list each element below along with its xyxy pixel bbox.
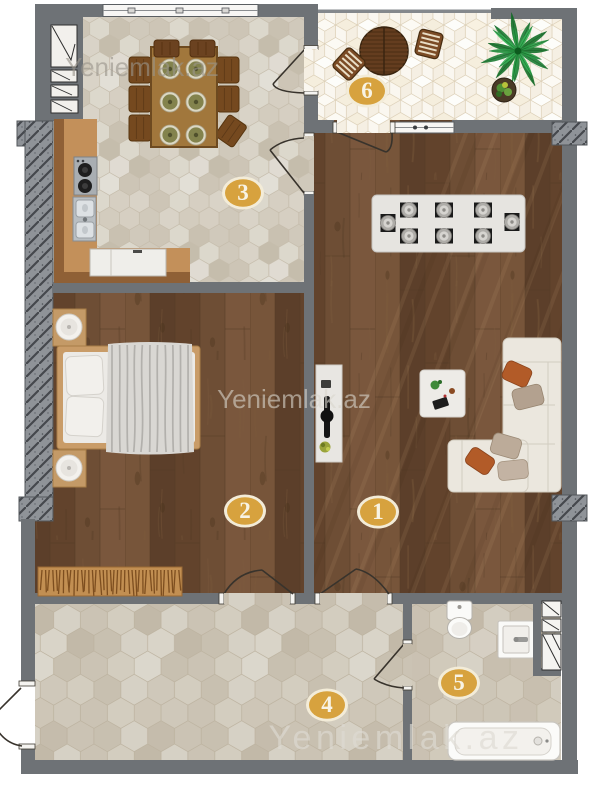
svg-text:4: 4 [321,692,333,717]
svg-text:Yeniemlak.az: Yeniemlak.az [217,384,371,414]
svg-text:3: 3 [237,180,249,205]
svg-text:Yeniemlak.az: Yeniemlak.az [269,719,524,757]
svg-text:2: 2 [239,498,251,523]
svg-text:5: 5 [453,670,465,695]
svg-text:Yeniemlak.az: Yeniemlak.az [65,52,219,82]
svg-text:6: 6 [361,78,373,103]
svg-text:1: 1 [372,499,384,524]
